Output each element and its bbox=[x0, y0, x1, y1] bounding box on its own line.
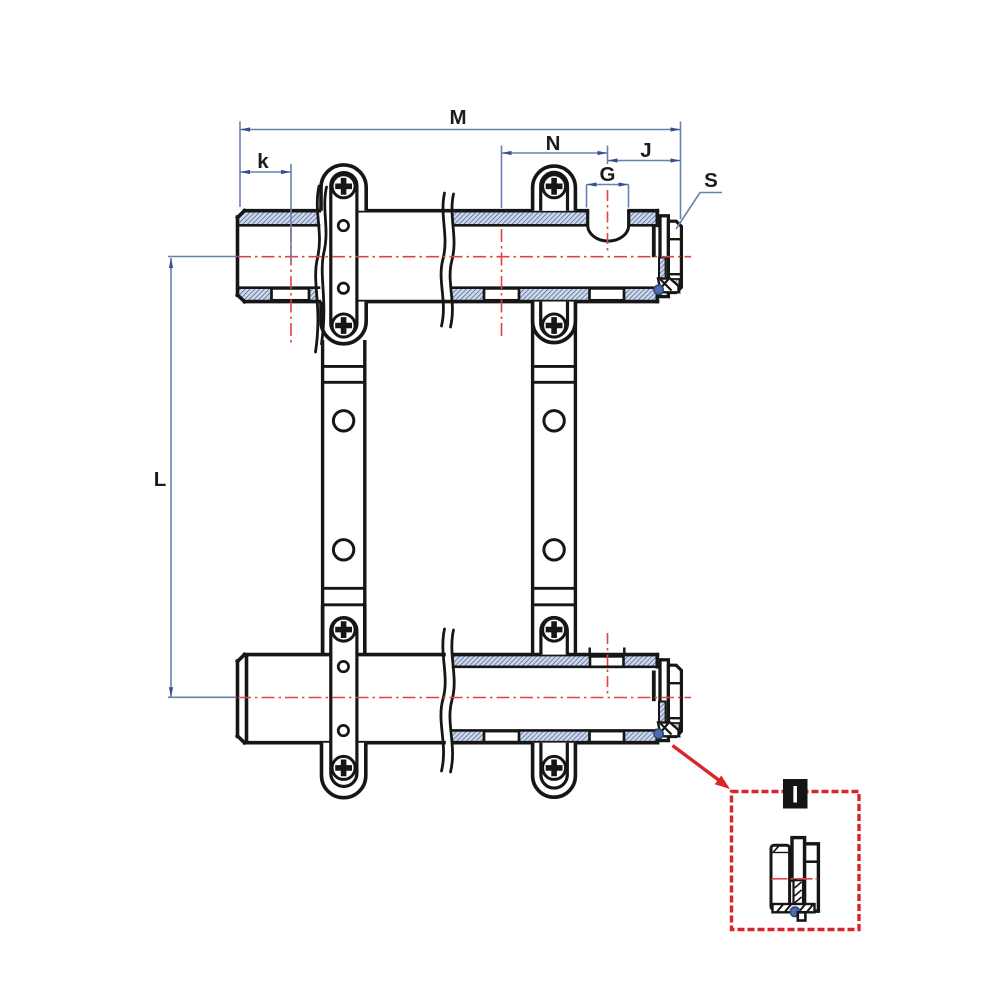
svg-text:J: J bbox=[640, 139, 651, 162]
svg-text:N: N bbox=[546, 132, 561, 155]
svg-text:G: G bbox=[600, 163, 616, 186]
svg-text:S: S bbox=[704, 169, 718, 192]
svg-text:L: L bbox=[154, 468, 167, 491]
svg-text:I: I bbox=[792, 782, 799, 809]
svg-text:k: k bbox=[257, 150, 269, 173]
svg-text:M: M bbox=[449, 106, 466, 129]
